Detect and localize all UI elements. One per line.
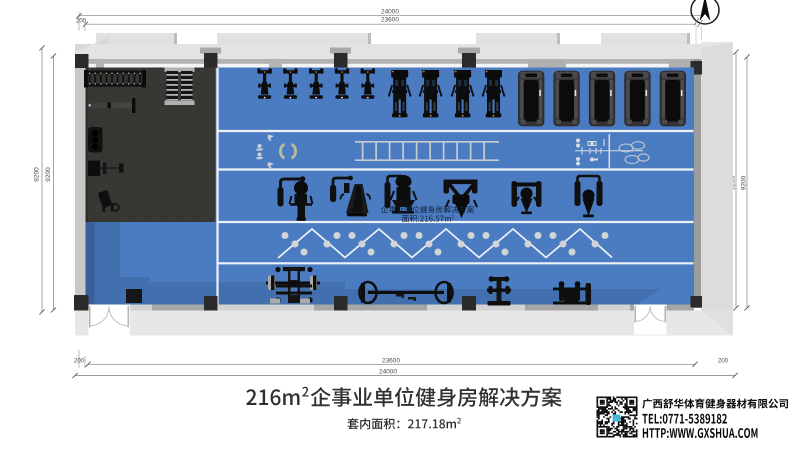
svg-text:200: 200	[718, 359, 729, 365]
svg-text:9200: 9200	[34, 167, 41, 182]
svg-text:9200: 9200	[45, 167, 52, 182]
svg-text:23600: 23600	[382, 358, 400, 365]
svg-text:24000: 24000	[381, 9, 399, 16]
svg-text:23600: 23600	[381, 17, 399, 24]
svg-text:9200: 9200	[741, 175, 748, 190]
svg-text:200: 200	[76, 19, 87, 25]
svg-text:24000: 24000	[379, 369, 397, 376]
svg-text:200: 200	[74, 359, 85, 365]
